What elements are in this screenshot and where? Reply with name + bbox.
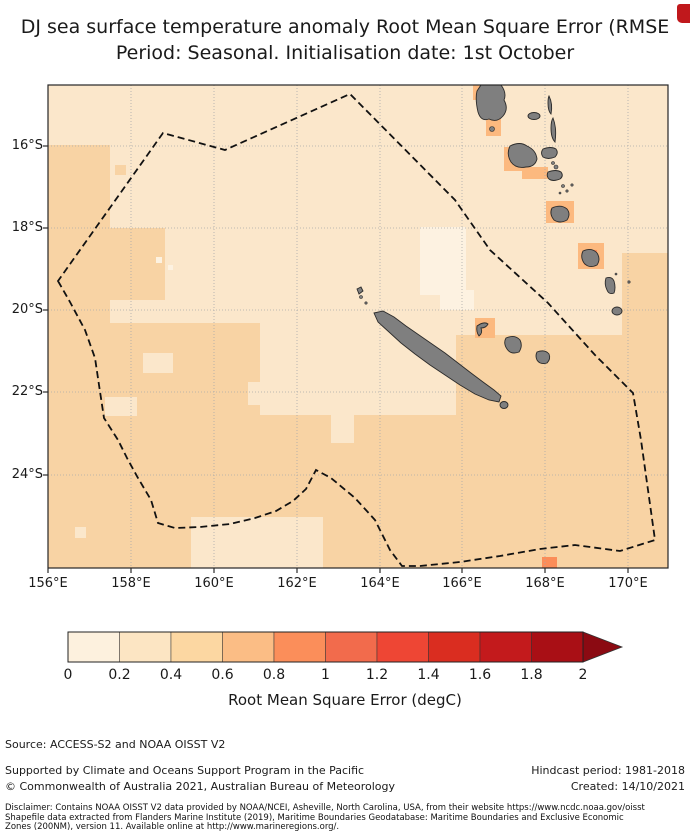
hindcast-period-text: Hindcast period: 1981-2018	[531, 764, 685, 777]
rmse-cell-04-06	[115, 165, 126, 175]
colorbar-segment	[377, 632, 429, 662]
colorbar-extend-arrow	[583, 632, 622, 662]
islet-dot	[365, 302, 367, 304]
islet-dot	[562, 185, 565, 188]
colorbar-segment	[223, 632, 275, 662]
colorbar-segment	[274, 632, 326, 662]
colorbar-segment	[326, 632, 378, 662]
rmse-cell-06-08	[522, 167, 548, 179]
rmse-cell-00-02	[420, 227, 466, 295]
x-axis-tick-label: 160°E	[184, 576, 244, 591]
islet-dot	[571, 184, 573, 186]
clipped-red-mark	[677, 4, 690, 23]
x-axis-tick-label: 162°E	[267, 576, 327, 591]
colorbar	[66, 630, 628, 664]
rmse-cell-02-04	[248, 382, 310, 405]
rmse-cell-04-06	[622, 253, 668, 345]
colorbar-segment	[120, 632, 172, 662]
islet-dot	[628, 281, 630, 283]
rmse-cell-04-06	[110, 228, 165, 300]
colorbar-tick-label: 1	[301, 667, 351, 683]
x-axis-tick-label: 168°E	[515, 576, 575, 591]
copyright-text: © Commonwealth of Australia 2021, Austra…	[5, 780, 395, 793]
island-espiritu-santo	[476, 85, 506, 120]
y-axis-tick-label: 22°S	[0, 384, 43, 400]
rmse-cell-00-02	[440, 290, 474, 310]
islet-dot	[554, 165, 558, 169]
island-aoba	[528, 113, 540, 120]
islet-dot	[490, 127, 495, 132]
rmse-cell-00-02	[156, 257, 162, 263]
rmse-cell-02-04	[105, 397, 137, 416]
island-aneityum	[612, 307, 622, 315]
island-mare	[536, 351, 550, 364]
figure-title-line1: DJ sea surface temperature anomaly Root …	[0, 16, 690, 38]
rmse-cell-02-04	[75, 527, 86, 538]
colorbar-tick-label: 0.2	[95, 667, 145, 683]
island-ambrym	[542, 148, 558, 159]
supported-by-text: Supported by Climate and Oceans Support …	[5, 764, 364, 777]
map-area	[48, 85, 668, 568]
x-axis-tick-label: 170°E	[598, 576, 658, 591]
colorbar-tick-label: 2	[558, 667, 608, 683]
colorbar-tick-label: 0.4	[146, 667, 196, 683]
island-epi	[547, 171, 562, 181]
islet-dot	[559, 192, 561, 194]
island-efate	[551, 206, 569, 222]
rmse-cell-02-04	[191, 517, 323, 568]
x-axis-tick-label: 166°E	[432, 576, 492, 591]
x-axis-tick-label: 164°E	[350, 576, 410, 591]
x-axis-tick-label: 158°E	[101, 576, 161, 591]
islet-dot	[566, 190, 568, 192]
y-axis-tick-label: 20°S	[0, 302, 43, 318]
island-isle-of-pines	[500, 402, 508, 409]
x-axis-tick-label: 156°E	[18, 576, 78, 591]
colorbar-title: Root Mean Square Error (degC)	[0, 691, 690, 709]
y-axis-tick-label: 16°S	[0, 138, 43, 154]
colorbar-tick-label: 0.8	[249, 667, 299, 683]
colorbar-tick-label: 1.4	[404, 667, 454, 683]
colorbar-tick-label: 1.8	[507, 667, 557, 683]
islet-dot	[552, 162, 555, 165]
disclaimer-line3: Zones (200NM), version 11. Available onl…	[5, 823, 690, 833]
colorbar-tick-label: 0	[43, 667, 93, 683]
colorbar-segment	[480, 632, 532, 662]
figure-title-line2: Period: Seasonal. Initialisation date: 1…	[0, 42, 690, 64]
colorbar-segment	[68, 632, 120, 662]
rmse-cell-02-04	[331, 411, 354, 443]
y-axis-tick-label: 18°S	[0, 220, 43, 236]
colorbar-tick-label: 0.6	[198, 667, 248, 683]
colorbar-segment	[171, 632, 223, 662]
rmse-cell-08-10	[542, 557, 557, 568]
created-date-text: Created: 14/10/2021	[571, 780, 685, 793]
colorbar-tick-label: 1.6	[455, 667, 505, 683]
rmse-cell-04-06	[48, 145, 110, 340]
y-axis-tick-label: 24°S	[0, 467, 43, 483]
islet-dot	[615, 273, 617, 275]
colorbar-segment	[429, 632, 481, 662]
colorbar-tick-label: 1.2	[352, 667, 402, 683]
map-svg	[48, 85, 668, 568]
rmse-cell-02-04	[143, 353, 173, 373]
colorbar-segment	[532, 632, 584, 662]
source-text: Source: ACCESS-S2 and NOAA OISST V2	[5, 738, 225, 751]
figure-page: { "title": { "line1": "DJ sea surface te…	[0, 0, 690, 839]
rmse-cell-00-02	[168, 265, 173, 270]
islet-dot	[360, 296, 363, 299]
rmse-cell-04-06	[456, 335, 668, 568]
